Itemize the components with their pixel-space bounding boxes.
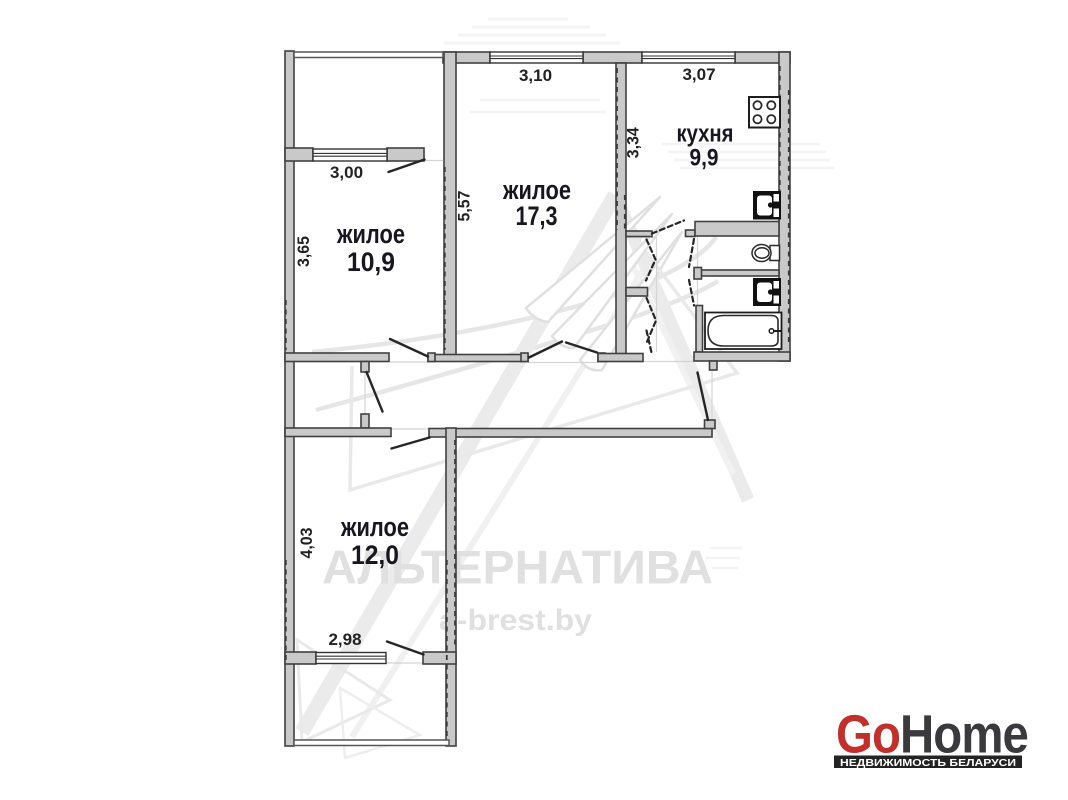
svg-text:3,65: 3,65 [294,236,313,267]
svg-text:12,0: 12,0 [351,540,399,570]
svg-text:НЕДВИЖИМОСТЬ БЕЛАРУСИ: НЕДВИЖИМОСТЬ БЕЛАРУСИ [840,757,1016,769]
svg-text:жилое: жилое [336,219,405,249]
svg-text:5,57: 5,57 [454,191,473,222]
svg-text:3,10: 3,10 [519,66,552,85]
svg-text:кухня: кухня [677,121,734,148]
svg-text:3,00: 3,00 [330,163,363,182]
svg-text:10,9: 10,9 [347,247,395,277]
svg-text:жилое: жилое [340,512,409,542]
svg-text:GoHome: GoHome [836,704,1028,765]
svg-text:9,9: 9,9 [690,145,719,172]
svg-text:17,3: 17,3 [516,201,558,231]
svg-text:3,34: 3,34 [623,127,642,159]
svg-text:4,03: 4,03 [297,528,316,559]
svg-text:3,07: 3,07 [682,65,715,84]
svg-text:a-brest.by: a-brest.by [439,604,592,637]
svg-text:2,98: 2,98 [328,630,361,649]
